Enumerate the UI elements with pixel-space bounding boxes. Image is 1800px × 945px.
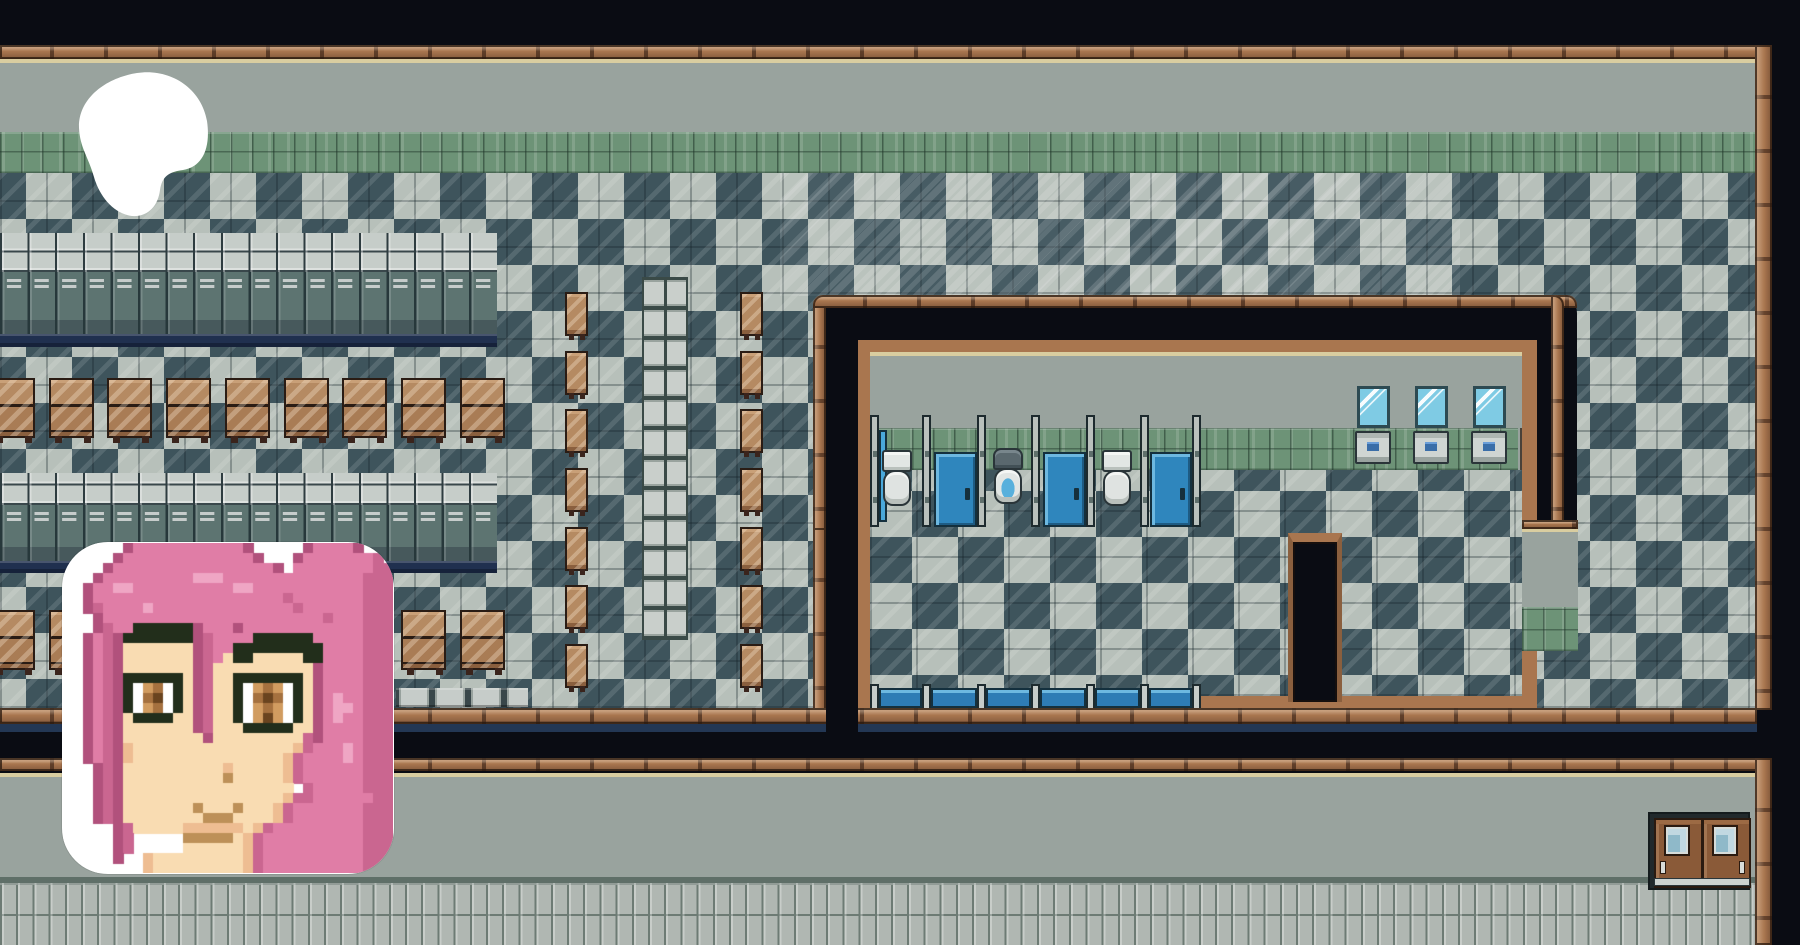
south-stall-bar xyxy=(879,688,922,708)
character-portrait xyxy=(62,542,394,874)
desk[interactable] xyxy=(460,378,505,438)
bathroom-frame-left-lower xyxy=(813,528,826,710)
desk[interactable] xyxy=(284,378,329,438)
vertical-desk[interactable] xyxy=(565,409,588,453)
mirror xyxy=(1357,386,1390,428)
south-stall-post xyxy=(922,684,931,710)
stall-door-closed[interactable] xyxy=(934,452,977,527)
stall-divider xyxy=(1192,415,1201,527)
blob-icon xyxy=(75,71,210,217)
chair[interactable] xyxy=(740,468,763,512)
toilet-bowl xyxy=(883,470,911,506)
moat-gap-through-trim xyxy=(826,708,858,758)
locker-base xyxy=(0,334,497,347)
vertical-desk[interactable] xyxy=(565,468,588,512)
vertical-desk[interactable] xyxy=(565,644,588,688)
portrait-pixel-art xyxy=(63,543,393,873)
south-stall-post xyxy=(1192,684,1201,710)
toilet-tank xyxy=(1102,450,1132,472)
sink[interactable] xyxy=(1413,431,1449,464)
desk[interactable] xyxy=(107,378,152,438)
bathroom-frame-top xyxy=(813,295,1577,308)
bathroom-frame-left xyxy=(813,295,826,541)
sink[interactable] xyxy=(1471,431,1507,464)
floor-light-sheen xyxy=(780,173,1460,296)
chair[interactable] xyxy=(740,644,763,688)
stall-divider xyxy=(1086,415,1095,527)
double-door[interactable] xyxy=(1648,812,1750,890)
lower-tile-floor xyxy=(0,883,1755,945)
desk[interactable] xyxy=(401,610,446,670)
south-stall-bar xyxy=(931,688,977,708)
locker-top-panels xyxy=(0,473,497,505)
bathroom-frame-right xyxy=(1551,295,1564,541)
vertical-desk[interactable] xyxy=(565,292,588,336)
toilet-bowl xyxy=(1103,470,1131,506)
chair[interactable] xyxy=(740,351,763,395)
stall-divider xyxy=(870,415,879,527)
door-handle xyxy=(1660,861,1666,874)
chair[interactable] xyxy=(740,527,763,571)
toilet-tank xyxy=(882,450,912,472)
door-kick-plate xyxy=(1654,878,1750,886)
glass-block-column xyxy=(642,277,688,640)
green-tile-band xyxy=(0,132,1757,173)
toilet-open-lid[interactable] xyxy=(991,448,1021,506)
locker-row-1 xyxy=(0,233,497,347)
toilet[interactable] xyxy=(880,450,910,508)
alcove-green-floor xyxy=(1522,607,1578,651)
bathroom-moat-left xyxy=(813,528,858,710)
desk[interactable] xyxy=(0,610,35,670)
vertical-desk[interactable] xyxy=(565,351,588,395)
chair[interactable] xyxy=(740,292,763,336)
south-stall-post xyxy=(1140,684,1149,710)
toilet[interactable] xyxy=(1100,450,1130,508)
stall-door-closed[interactable] xyxy=(1150,452,1192,527)
toilet-bowl xyxy=(994,468,1022,504)
vertical-desk[interactable] xyxy=(565,527,588,571)
door-window xyxy=(1666,827,1688,854)
desk[interactable] xyxy=(0,378,35,438)
top-wall xyxy=(0,63,1757,132)
desk[interactable] xyxy=(342,378,387,438)
right-wall-bar-lower xyxy=(1755,758,1772,945)
sink[interactable] xyxy=(1355,431,1391,464)
white-blob-logo xyxy=(75,71,210,217)
door-window xyxy=(1714,827,1736,854)
south-stall-post xyxy=(1086,684,1095,710)
south-stall-bar xyxy=(1040,688,1086,708)
south-stall-post xyxy=(977,684,986,710)
stall-divider xyxy=(1031,415,1040,527)
alcove-wall xyxy=(1522,529,1578,607)
stall-divider xyxy=(922,415,931,527)
game-viewport xyxy=(0,0,1800,945)
top-wall-trim xyxy=(0,45,1772,59)
south-stall-post xyxy=(870,684,879,710)
vertical-desk[interactable] xyxy=(565,585,588,629)
south-stall-bar xyxy=(1149,688,1192,708)
mirror xyxy=(1415,386,1448,428)
south-stall-bar xyxy=(986,688,1031,708)
locker-doors[interactable] xyxy=(0,272,497,334)
stall-divider xyxy=(1140,415,1149,527)
south-stall-bar xyxy=(1095,688,1140,708)
door-handle xyxy=(1739,861,1745,874)
locker-top-panels xyxy=(0,233,497,272)
toilet-lid xyxy=(993,448,1023,470)
desk[interactable] xyxy=(460,610,505,670)
stall-door-closed[interactable] xyxy=(1043,452,1086,527)
stall-divider xyxy=(977,415,986,527)
south-stall-post xyxy=(1031,684,1040,710)
desk[interactable] xyxy=(49,378,94,438)
desk[interactable] xyxy=(166,378,211,438)
bathroom-entrance-alcove xyxy=(1522,520,1578,651)
desk[interactable] xyxy=(401,378,446,438)
chair[interactable] xyxy=(740,585,763,629)
bench-strip xyxy=(396,688,528,707)
right-wall-bar-upper xyxy=(1755,45,1772,710)
desk[interactable] xyxy=(225,378,270,438)
alcove-cap xyxy=(1522,520,1578,529)
chair[interactable] xyxy=(740,409,763,453)
bathroom-interior-wall xyxy=(1288,533,1342,702)
mirror xyxy=(1473,386,1506,428)
